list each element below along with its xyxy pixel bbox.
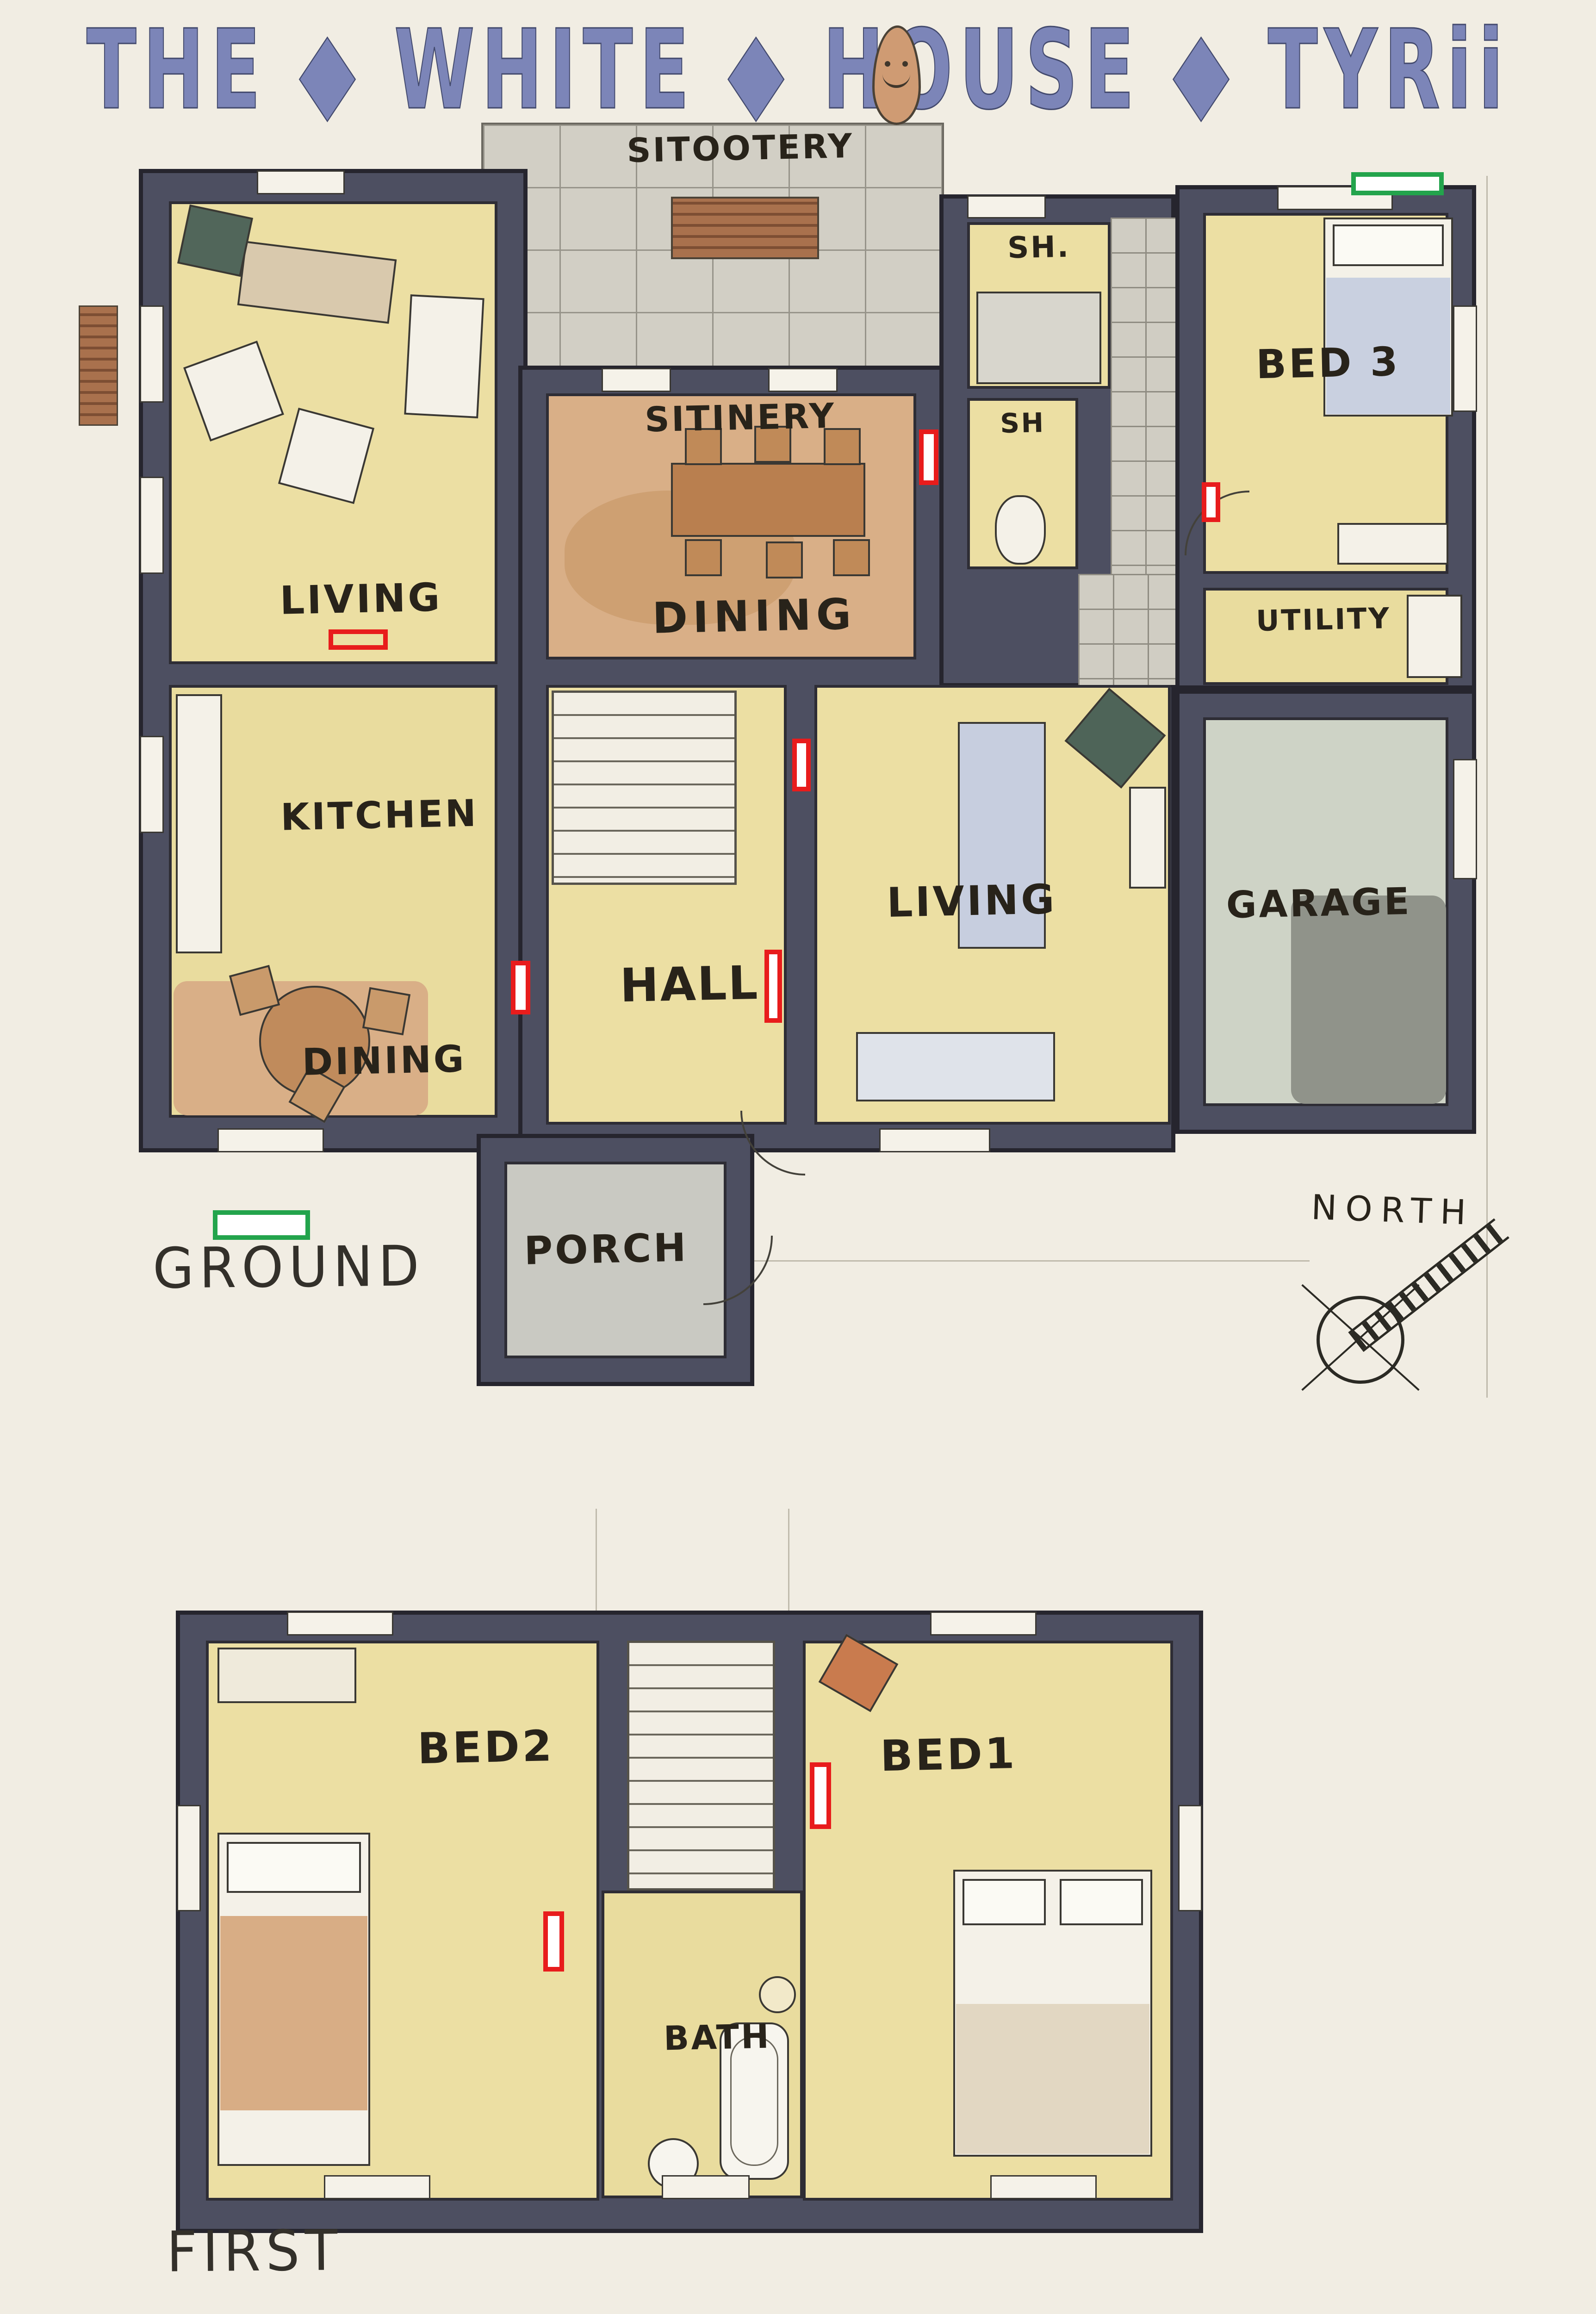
staircase bbox=[552, 690, 737, 885]
room-label-bed-2: BED2 bbox=[393, 1721, 579, 1774]
dresser bbox=[1337, 523, 1448, 565]
window bbox=[879, 1128, 990, 1152]
smiley-eye-left bbox=[885, 61, 890, 67]
room-label-bath: BATH bbox=[647, 2016, 787, 2058]
page-title: THE ◆ WHITE ◆ HOUSE ◆ TYRii bbox=[19, 6, 1578, 134]
chair bbox=[833, 539, 870, 576]
window bbox=[1453, 305, 1477, 412]
tiled-back-hall bbox=[1078, 574, 1175, 685]
watercolor-floor-plan: { "title": { "full": "THE ◆ WHITE ◆ HOUS… bbox=[0, 0, 1596, 2314]
window-seat bbox=[79, 305, 118, 426]
room-label-living-back: LIVING bbox=[860, 875, 1083, 927]
window bbox=[140, 305, 164, 403]
room-label-shower-1: SH. bbox=[981, 229, 1097, 266]
room-label-bed-3: BED 3 bbox=[1221, 338, 1435, 389]
basin bbox=[759, 1976, 796, 2013]
pencil-line bbox=[596, 1509, 597, 1615]
dresser bbox=[1129, 787, 1166, 889]
window bbox=[662, 2175, 750, 2199]
sofa bbox=[856, 1032, 1055, 1101]
smiley-mouth bbox=[882, 67, 910, 88]
ground-floor-label: GROUND bbox=[152, 1234, 424, 1301]
window bbox=[1178, 1805, 1202, 1911]
window bbox=[257, 170, 345, 194]
room-label-dining-kitchen: DINING bbox=[282, 1037, 486, 1084]
staircase-first bbox=[627, 1641, 775, 1891]
pencil-line bbox=[788, 1509, 789, 1615]
bed-pillow bbox=[227, 1842, 361, 1893]
window bbox=[324, 2175, 430, 2199]
wardrobe bbox=[217, 1648, 356, 1703]
side-table bbox=[404, 294, 484, 418]
chair bbox=[685, 539, 722, 576]
room-label-utility: UTILITY bbox=[1217, 600, 1430, 639]
pencil-line bbox=[727, 1260, 1310, 1262]
chair bbox=[766, 541, 803, 578]
window bbox=[1277, 186, 1393, 210]
room-label-kitchen: KITCHEN bbox=[263, 791, 496, 839]
room-label-shower-2: SH bbox=[976, 406, 1069, 440]
compass-north-arrow bbox=[1348, 1218, 1509, 1352]
chair bbox=[362, 987, 410, 1035]
first-floor-label: FIRST bbox=[166, 2218, 343, 2285]
window bbox=[990, 2175, 1097, 2199]
window bbox=[287, 1611, 393, 1636]
patio-door bbox=[768, 368, 838, 392]
bed-pillow bbox=[1060, 1879, 1143, 1925]
window bbox=[140, 736, 164, 833]
room-label-bed-1: BED1 bbox=[856, 1728, 1042, 1781]
bed-pillow bbox=[1333, 224, 1444, 266]
window bbox=[967, 195, 1046, 218]
bed-blanket bbox=[956, 2004, 1149, 2154]
smiley-eye-right bbox=[902, 61, 908, 67]
toilet bbox=[995, 495, 1046, 565]
window bbox=[217, 1128, 324, 1152]
room-label-hall: HALL bbox=[615, 956, 764, 1013]
room-label-garage: GARAGE bbox=[1212, 879, 1426, 927]
patio-table bbox=[671, 197, 819, 259]
bed-blanket bbox=[220, 1916, 367, 2110]
window bbox=[140, 477, 164, 574]
window bbox=[1453, 759, 1477, 879]
bed-pillow bbox=[963, 1879, 1046, 1925]
window bbox=[177, 1805, 201, 1911]
compass-label-north: NORTH bbox=[1295, 1187, 1491, 1234]
shower-tray bbox=[976, 292, 1101, 384]
room-label-dining-main: DINING bbox=[592, 588, 917, 645]
dining-table bbox=[671, 463, 865, 537]
room-label-sitinery: SITINERY bbox=[578, 395, 903, 442]
patio-door bbox=[602, 368, 671, 392]
garage-shadow bbox=[1291, 896, 1446, 1104]
room-label-living-front: LIVING bbox=[249, 574, 472, 624]
room-label-porch: PORCH bbox=[513, 1225, 699, 1274]
room-label-sitootery: SITOOTERY bbox=[555, 125, 926, 172]
window bbox=[930, 1611, 1037, 1636]
kitchen-counter bbox=[176, 694, 222, 953]
